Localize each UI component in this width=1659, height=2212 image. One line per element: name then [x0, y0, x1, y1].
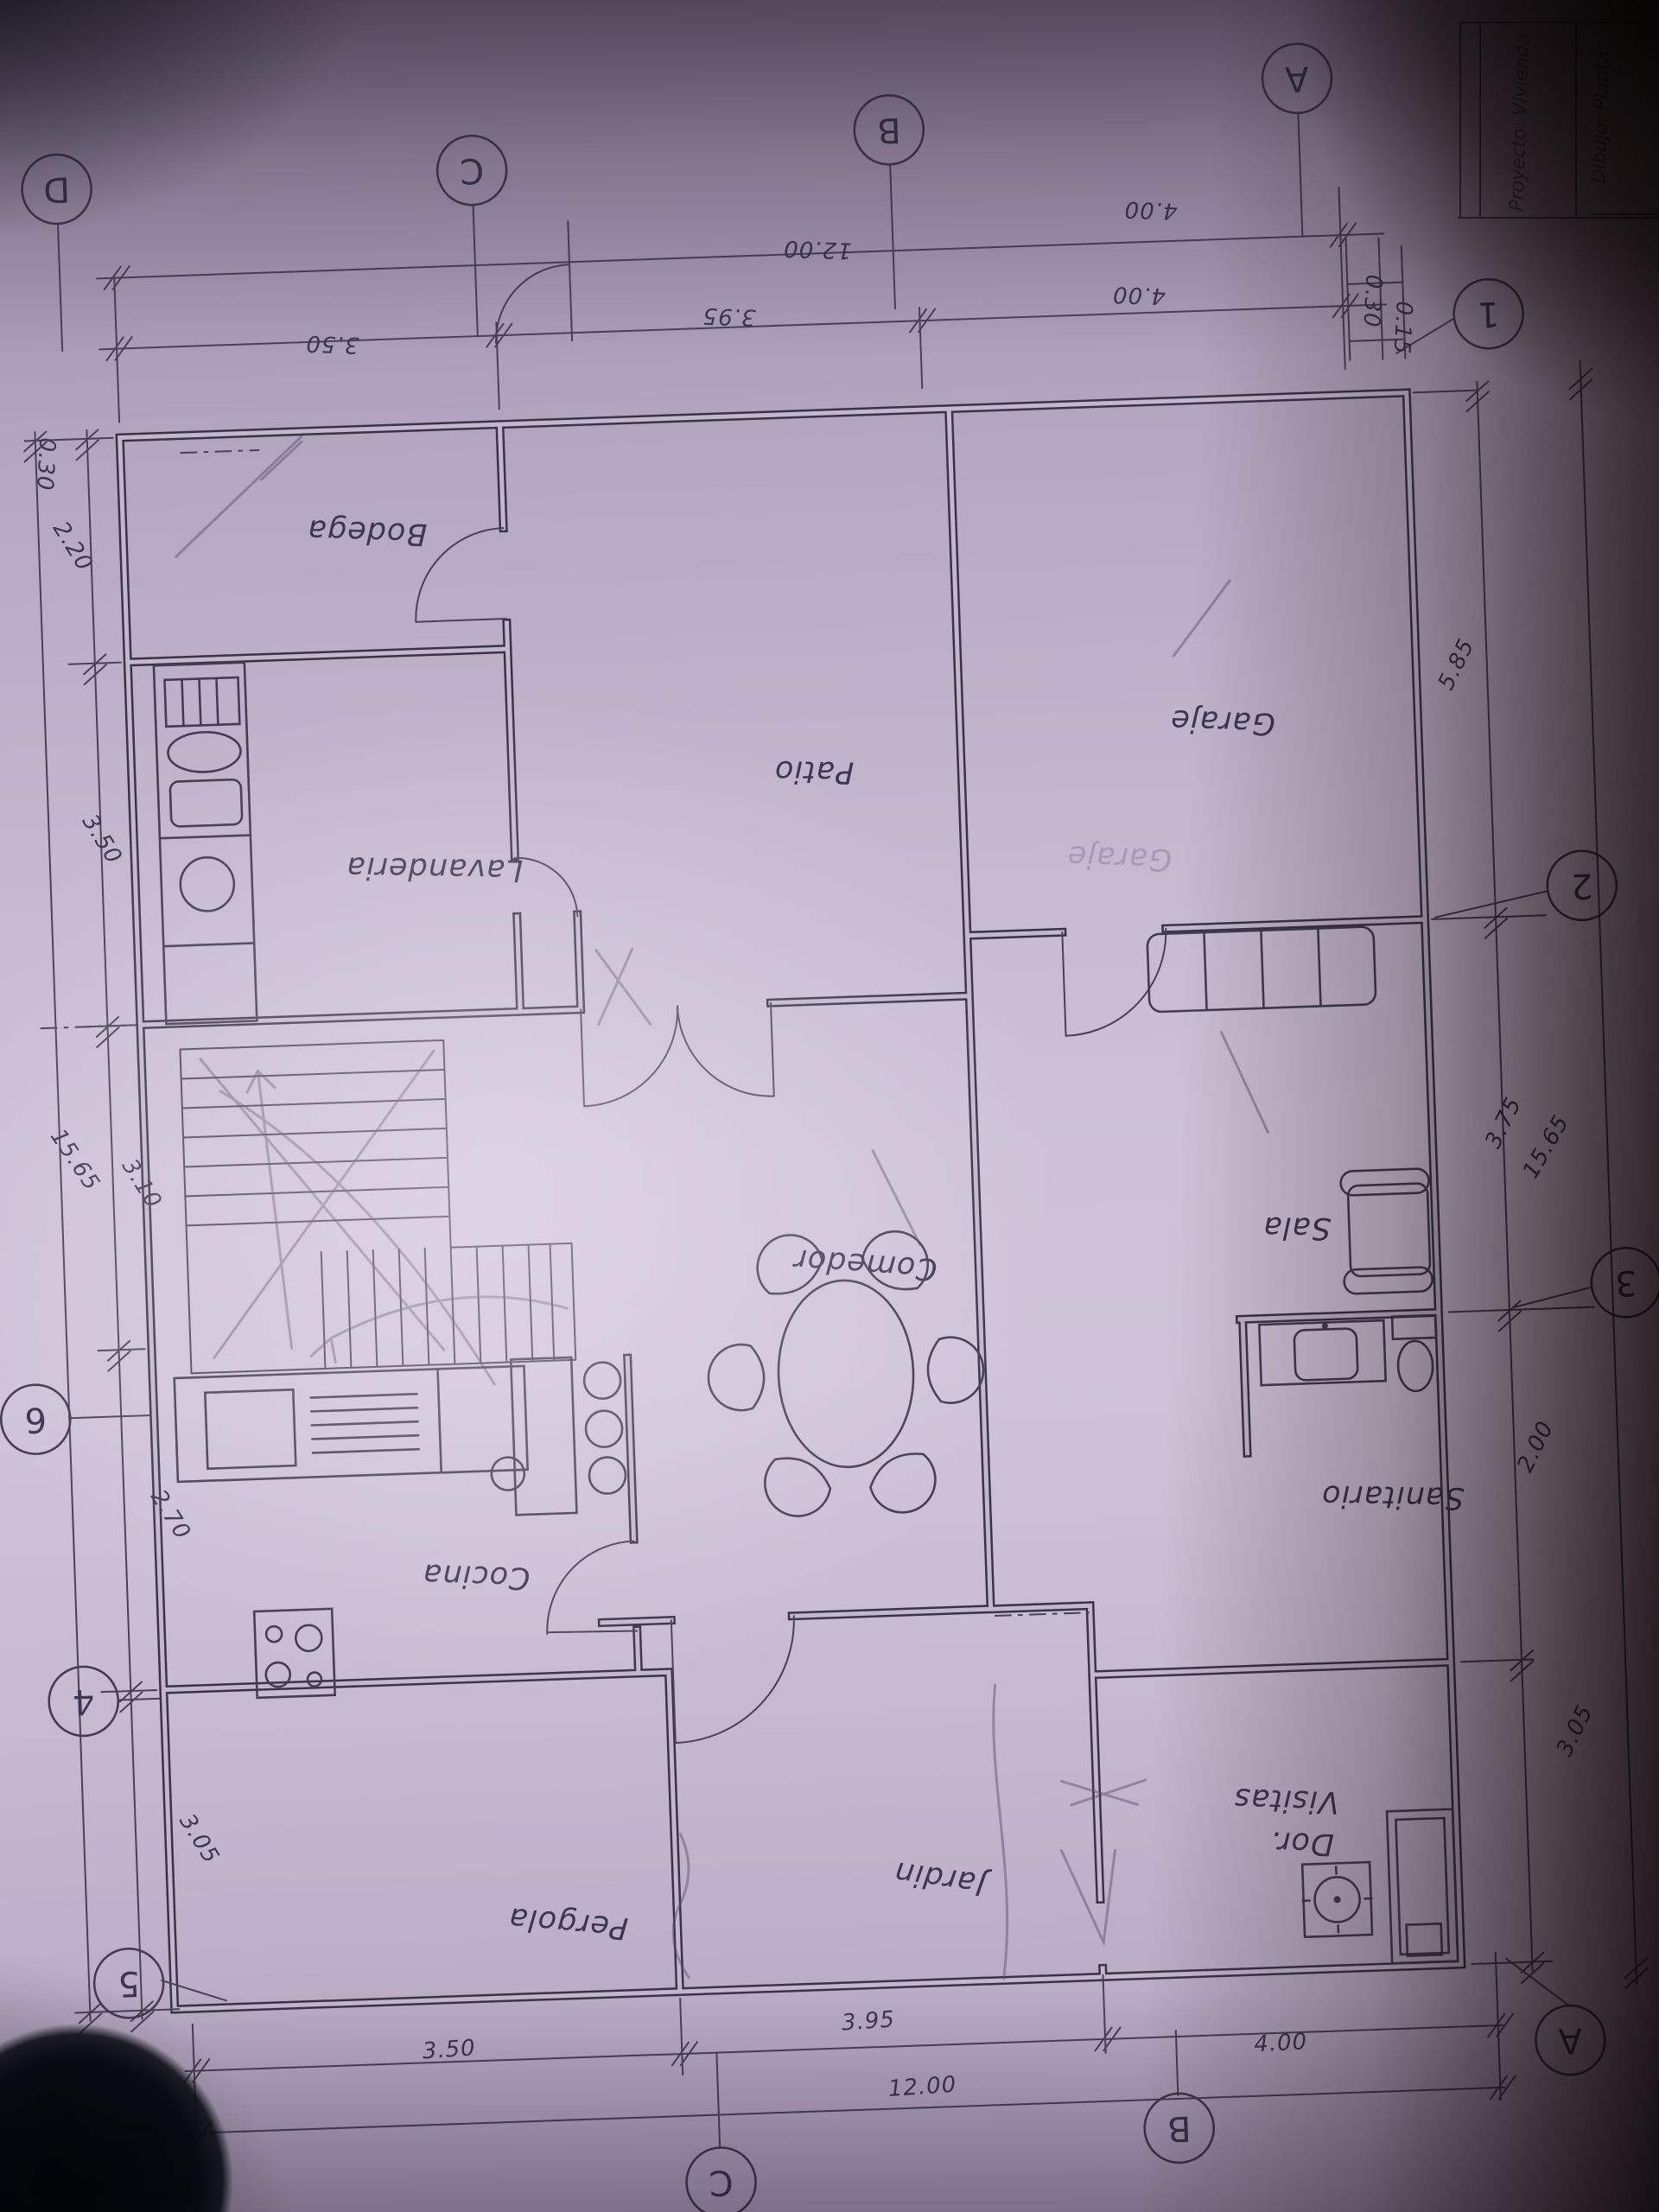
- grid-bubble-6: 6: [24, 1399, 48, 1440]
- dim-left-310: 3.10: [117, 1154, 167, 1213]
- room-label-visitas: Visitas: [1233, 1781, 1339, 1819]
- walls: [21, 393, 1462, 2013]
- dryer-icon: [170, 779, 243, 827]
- pencil-cross-stairs: [200, 1046, 569, 1394]
- kitchen-bar: [511, 1357, 576, 1515]
- dim-top-015: 0.15: [1389, 301, 1417, 355]
- room-labels: Bodega Patio Garaje Lavanderia Comedor S…: [305, 474, 1479, 1955]
- dining-table-icon: [775, 1278, 916, 1469]
- dim-left-350: 3.50: [77, 810, 127, 868]
- dim-top-400: 4.00: [1112, 281, 1166, 308]
- dim-top-350: 3.50: [305, 330, 359, 358]
- title-block-line2: Dibujo: Planta: [1588, 50, 1614, 184]
- entry-gate-arc: [492, 221, 572, 343]
- stool-icon: [588, 1457, 626, 1494]
- room-label-cocina: Cocina: [422, 1557, 531, 1595]
- room-label-garaje: Garaje: [1170, 702, 1276, 741]
- dim-bottom-1200: 12.00: [887, 2072, 957, 2102]
- toilet-icon: [1397, 1340, 1433, 1391]
- grid-bubble-c-bottom: C: [709, 2162, 734, 2202]
- laundry-fixtures: [154, 663, 257, 1024]
- room-label-sala: Sala: [1262, 1210, 1332, 1245]
- grid-bubble-2: 2: [1570, 865, 1593, 906]
- dimension-labels: 3.50 3.95 4.00 12.00 4.00 0.30 0.15 0.30…: [13, 181, 1611, 2131]
- armchair-icon: [1348, 1183, 1431, 1276]
- room-label-patio: Patio: [774, 753, 855, 790]
- round-sink-icon: [491, 1457, 524, 1491]
- kitchen-sink-icon: [205, 1389, 296, 1469]
- centerline-dashes: [21, 423, 1088, 1649]
- room-label-lavanderia: Lavanderia: [346, 849, 523, 887]
- grid-bubbles: D C B A C B A 6 4 5 1 2 3: [0, 33, 1659, 2212]
- grid-bubble-5: 5: [118, 1963, 141, 2004]
- dim-top-1200: 12.00: [783, 235, 852, 264]
- room-label-bodega: Bodega: [307, 512, 428, 551]
- dim-left-270: 2.70: [145, 1485, 195, 1544]
- pencil-marks: Garaje: [172, 404, 1297, 2005]
- toilet-tank: [1392, 1315, 1436, 1339]
- room-label-pergola: Pergola: [507, 1900, 630, 1945]
- kitchen-fixtures: [174, 1356, 632, 1700]
- grid-bubble-a-bottom: A: [1557, 2020, 1583, 2061]
- dim-right-305: 3.05: [1552, 1701, 1599, 1761]
- grid-bubble-b-bottom: B: [1166, 2107, 1192, 2148]
- dim-right-200: 2.00: [1512, 1417, 1559, 1477]
- stool-icon: [583, 1362, 620, 1399]
- dim-right-375: 3.75: [1480, 1093, 1527, 1153]
- room-label-dor: Dor.: [1269, 1824, 1335, 1861]
- grid-bubble-3: 3: [1614, 1262, 1637, 1303]
- dim-left-305: 3.05: [174, 1809, 224, 1868]
- staircase: [180, 1036, 576, 1395]
- title-block-line1: Proyecto: Vivienda: [1506, 33, 1534, 212]
- stool-icon: [585, 1410, 622, 1447]
- room-label-jardin: Jardin: [892, 1854, 993, 1902]
- dim-bottom-400: 4.00: [1254, 2029, 1308, 2057]
- bathroom-fixtures: [1259, 1315, 1438, 1396]
- dim-top-400b: 4.00: [1123, 196, 1178, 224]
- grid-bubble-c: C: [459, 150, 485, 191]
- grid-bubble-4: 4: [72, 1681, 95, 1721]
- dim-bottom-350: 3.50: [422, 2035, 477, 2064]
- title-block: Proyecto: Vivienda Dibujo: Planta: [1459, 19, 1659, 218]
- dim-right-1565: 15.65: [1518, 1110, 1575, 1183]
- dim-left-030: 0.30: [31, 437, 60, 492]
- laundry-sink-icon: [168, 731, 242, 773]
- bath-sink-icon: [1294, 1328, 1358, 1380]
- room-label-comedor: Comedor: [791, 1242, 938, 1287]
- washer-icon: [165, 677, 240, 727]
- dim-bottom-395: 3.95: [841, 2006, 896, 2036]
- grid-bubble-a: A: [1284, 58, 1310, 99]
- grid-bubble-b: B: [876, 110, 901, 150]
- dim-left-1565: 15.65: [45, 1124, 105, 1196]
- dim-top-030: 0.30: [1357, 274, 1386, 328]
- extension-lines: [13, 180, 1621, 2152]
- dim-top-395: 3.95: [702, 302, 756, 330]
- dim-right-585: 5.85: [1433, 635, 1480, 695]
- grid-bubble-1: 1: [1477, 294, 1500, 334]
- dark-object: [0, 2024, 233, 2212]
- grid-bubble-d: D: [42, 168, 70, 209]
- laundry-tub-icon: [180, 856, 235, 912]
- room-label-sanitario: Sanitario: [1321, 1478, 1465, 1515]
- ghost-garaje-label: Garaje: [1066, 838, 1173, 876]
- photo-of-floor-plan: Garaje D C B A C B A 6 4: [0, 0, 1659, 2212]
- floor-plan-drawing: Garaje D C B A C B A 6 4: [0, 0, 1659, 2212]
